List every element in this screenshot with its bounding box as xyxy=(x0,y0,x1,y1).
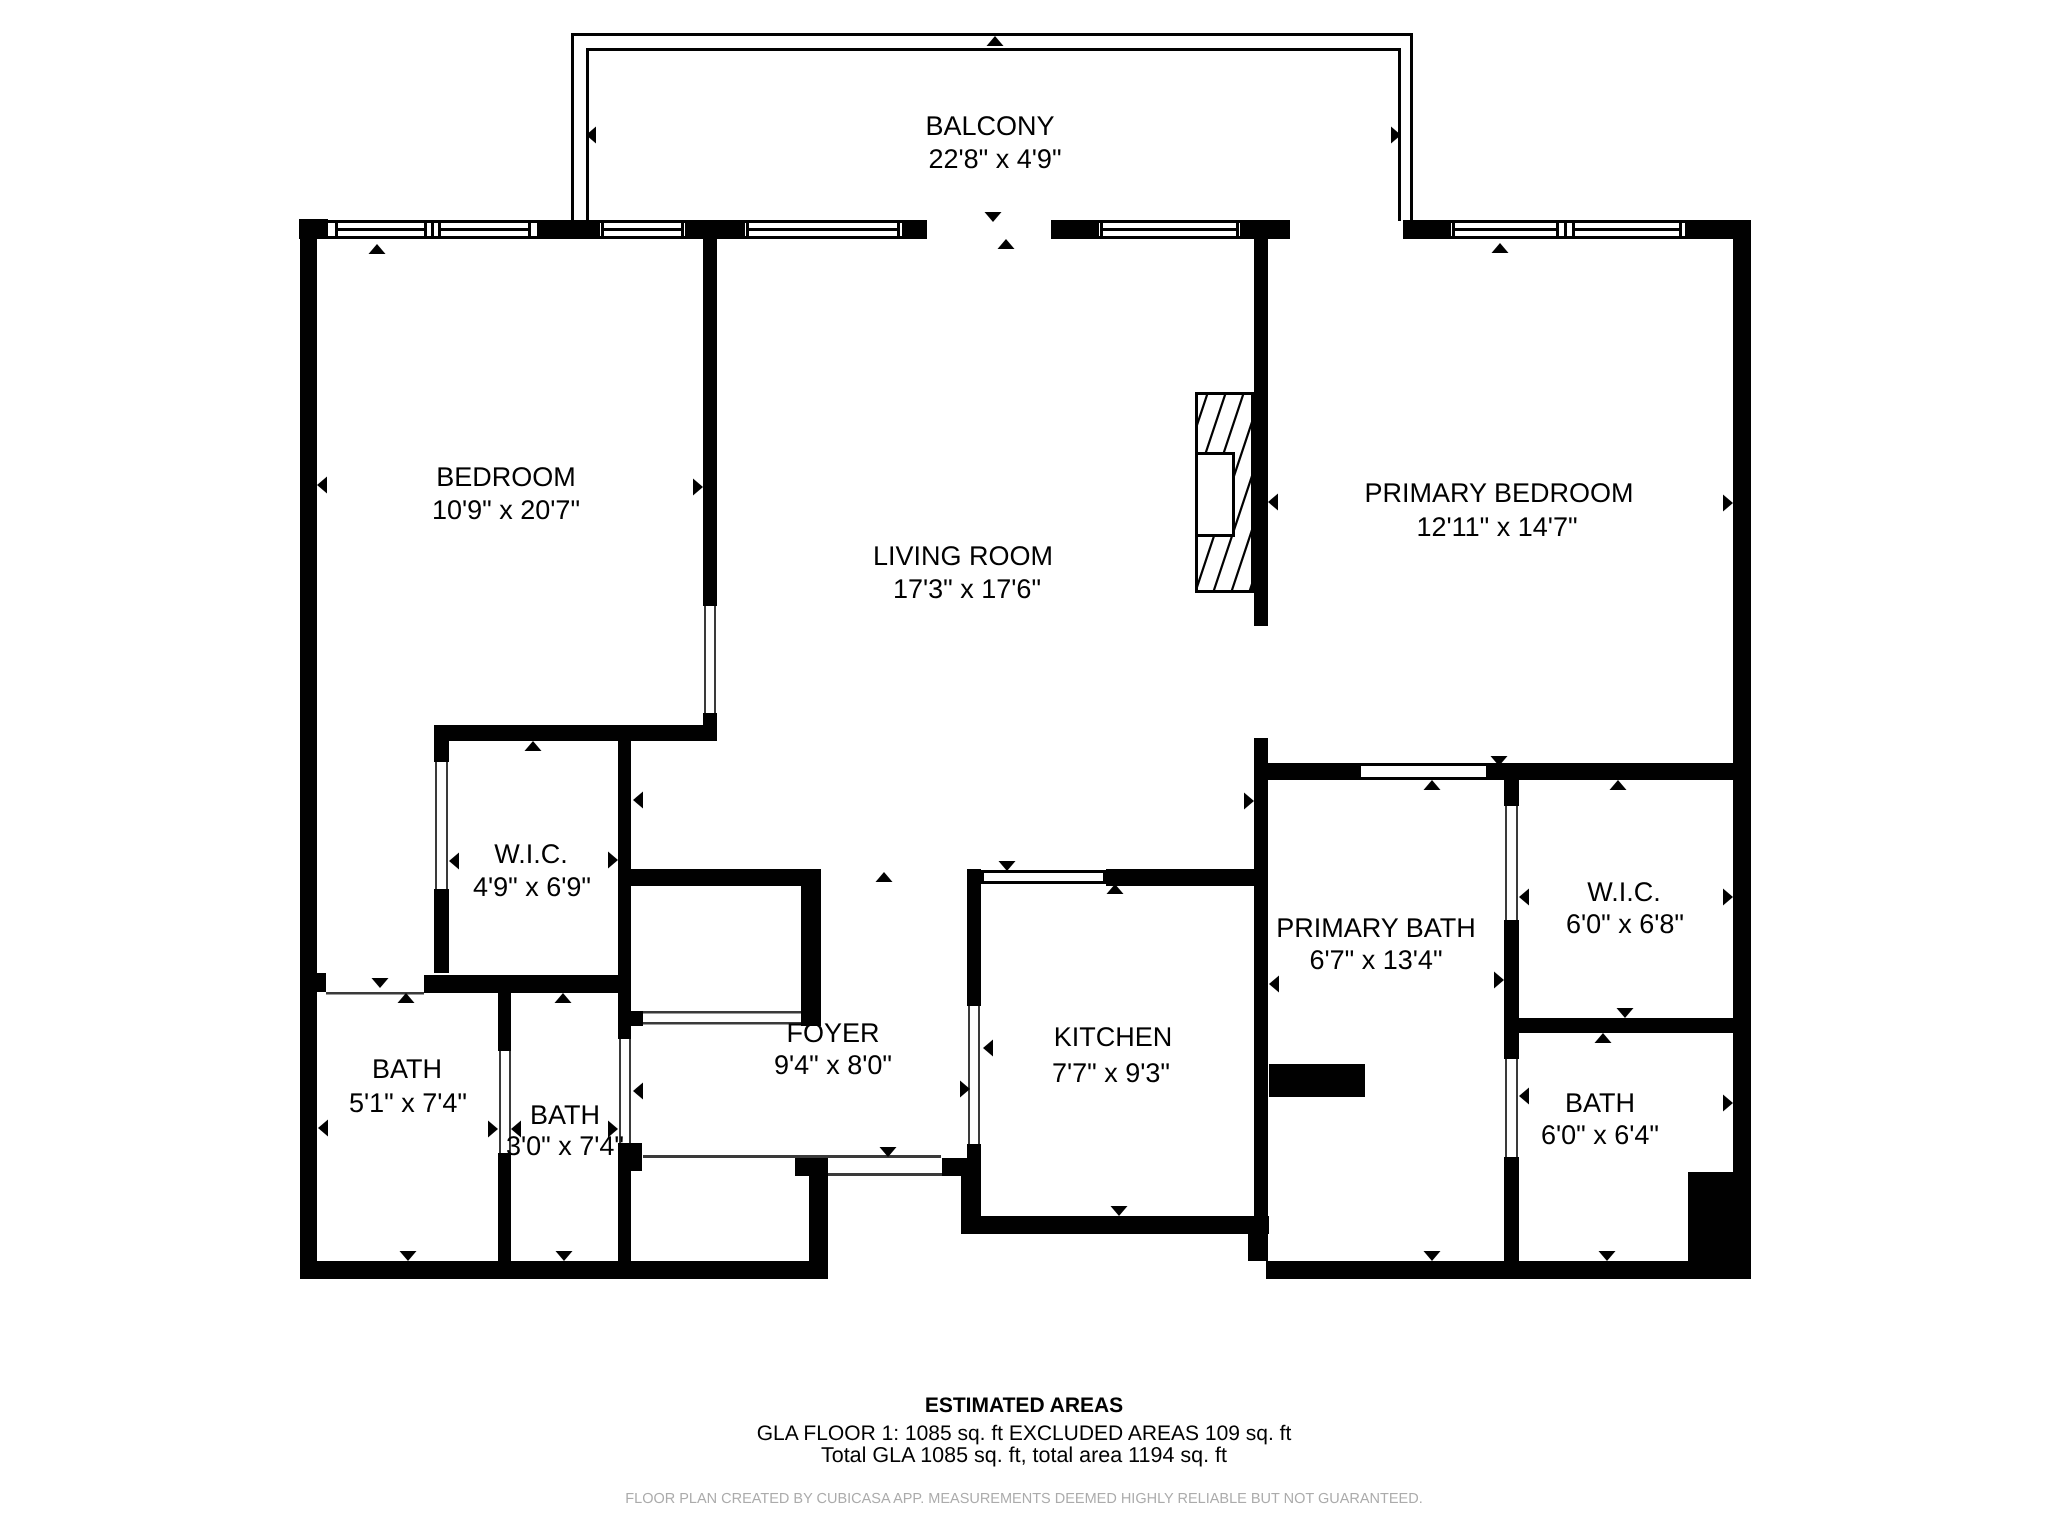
svg-text:LIVING ROOM: LIVING ROOM xyxy=(873,541,1053,571)
svg-text:BEDROOM: BEDROOM xyxy=(436,462,576,492)
svg-text:6'0" x 6'4": 6'0" x 6'4" xyxy=(1541,1120,1659,1150)
svg-text:BATH: BATH xyxy=(1565,1088,1635,1118)
svg-text:4'9" x 6'9": 4'9" x 6'9" xyxy=(473,872,591,902)
svg-text:17'3" x 17'6": 17'3" x 17'6" xyxy=(893,574,1041,604)
svg-text:6'7" x 13'4": 6'7" x 13'4" xyxy=(1309,945,1442,975)
svg-text:ESTIMATED AREAS: ESTIMATED AREAS xyxy=(925,1394,1123,1417)
svg-text:6'0" x 6'8": 6'0" x 6'8" xyxy=(1566,909,1684,939)
svg-text:7'7" x 9'3": 7'7" x 9'3" xyxy=(1052,1058,1170,1088)
svg-text:22'8" x 4'9": 22'8" x 4'9" xyxy=(928,144,1061,174)
svg-text:KITCHEN: KITCHEN xyxy=(1054,1022,1173,1052)
svg-text:W.I.C.: W.I.C. xyxy=(1587,877,1661,907)
svg-text:3'0" x 7'4": 3'0" x 7'4" xyxy=(506,1131,624,1161)
svg-text:BALCONY: BALCONY xyxy=(925,111,1054,141)
svg-text:W.I.C.: W.I.C. xyxy=(494,839,568,869)
svg-text:Total GLA 1085 sq. ft, total a: Total GLA 1085 sq. ft, total area 1194 s… xyxy=(821,1443,1227,1467)
svg-text:10'9" x 20'7": 10'9" x 20'7" xyxy=(432,495,580,525)
svg-text:5'1" x 7'4": 5'1" x 7'4" xyxy=(349,1088,467,1118)
svg-text:FLOOR PLAN CREATED BY CUBICASA: FLOOR PLAN CREATED BY CUBICASA APP. MEAS… xyxy=(625,1491,1422,1507)
svg-text:9'4" x 8'0": 9'4" x 8'0" xyxy=(774,1050,892,1080)
svg-text:GLA FLOOR 1: 1085 sq. ft EXCLU: GLA FLOOR 1: 1085 sq. ft EXCLUDED AREAS … xyxy=(757,1422,1292,1445)
svg-text:FOYER: FOYER xyxy=(786,1018,879,1048)
svg-text:BATH: BATH xyxy=(372,1054,442,1084)
svg-text:PRIMARY BATH: PRIMARY BATH xyxy=(1276,913,1476,943)
svg-text:BATH: BATH xyxy=(530,1100,600,1130)
svg-text:12'11" x 14'7": 12'11" x 14'7" xyxy=(1416,512,1577,542)
svg-text:PRIMARY BEDROOM: PRIMARY BEDROOM xyxy=(1364,478,1633,508)
